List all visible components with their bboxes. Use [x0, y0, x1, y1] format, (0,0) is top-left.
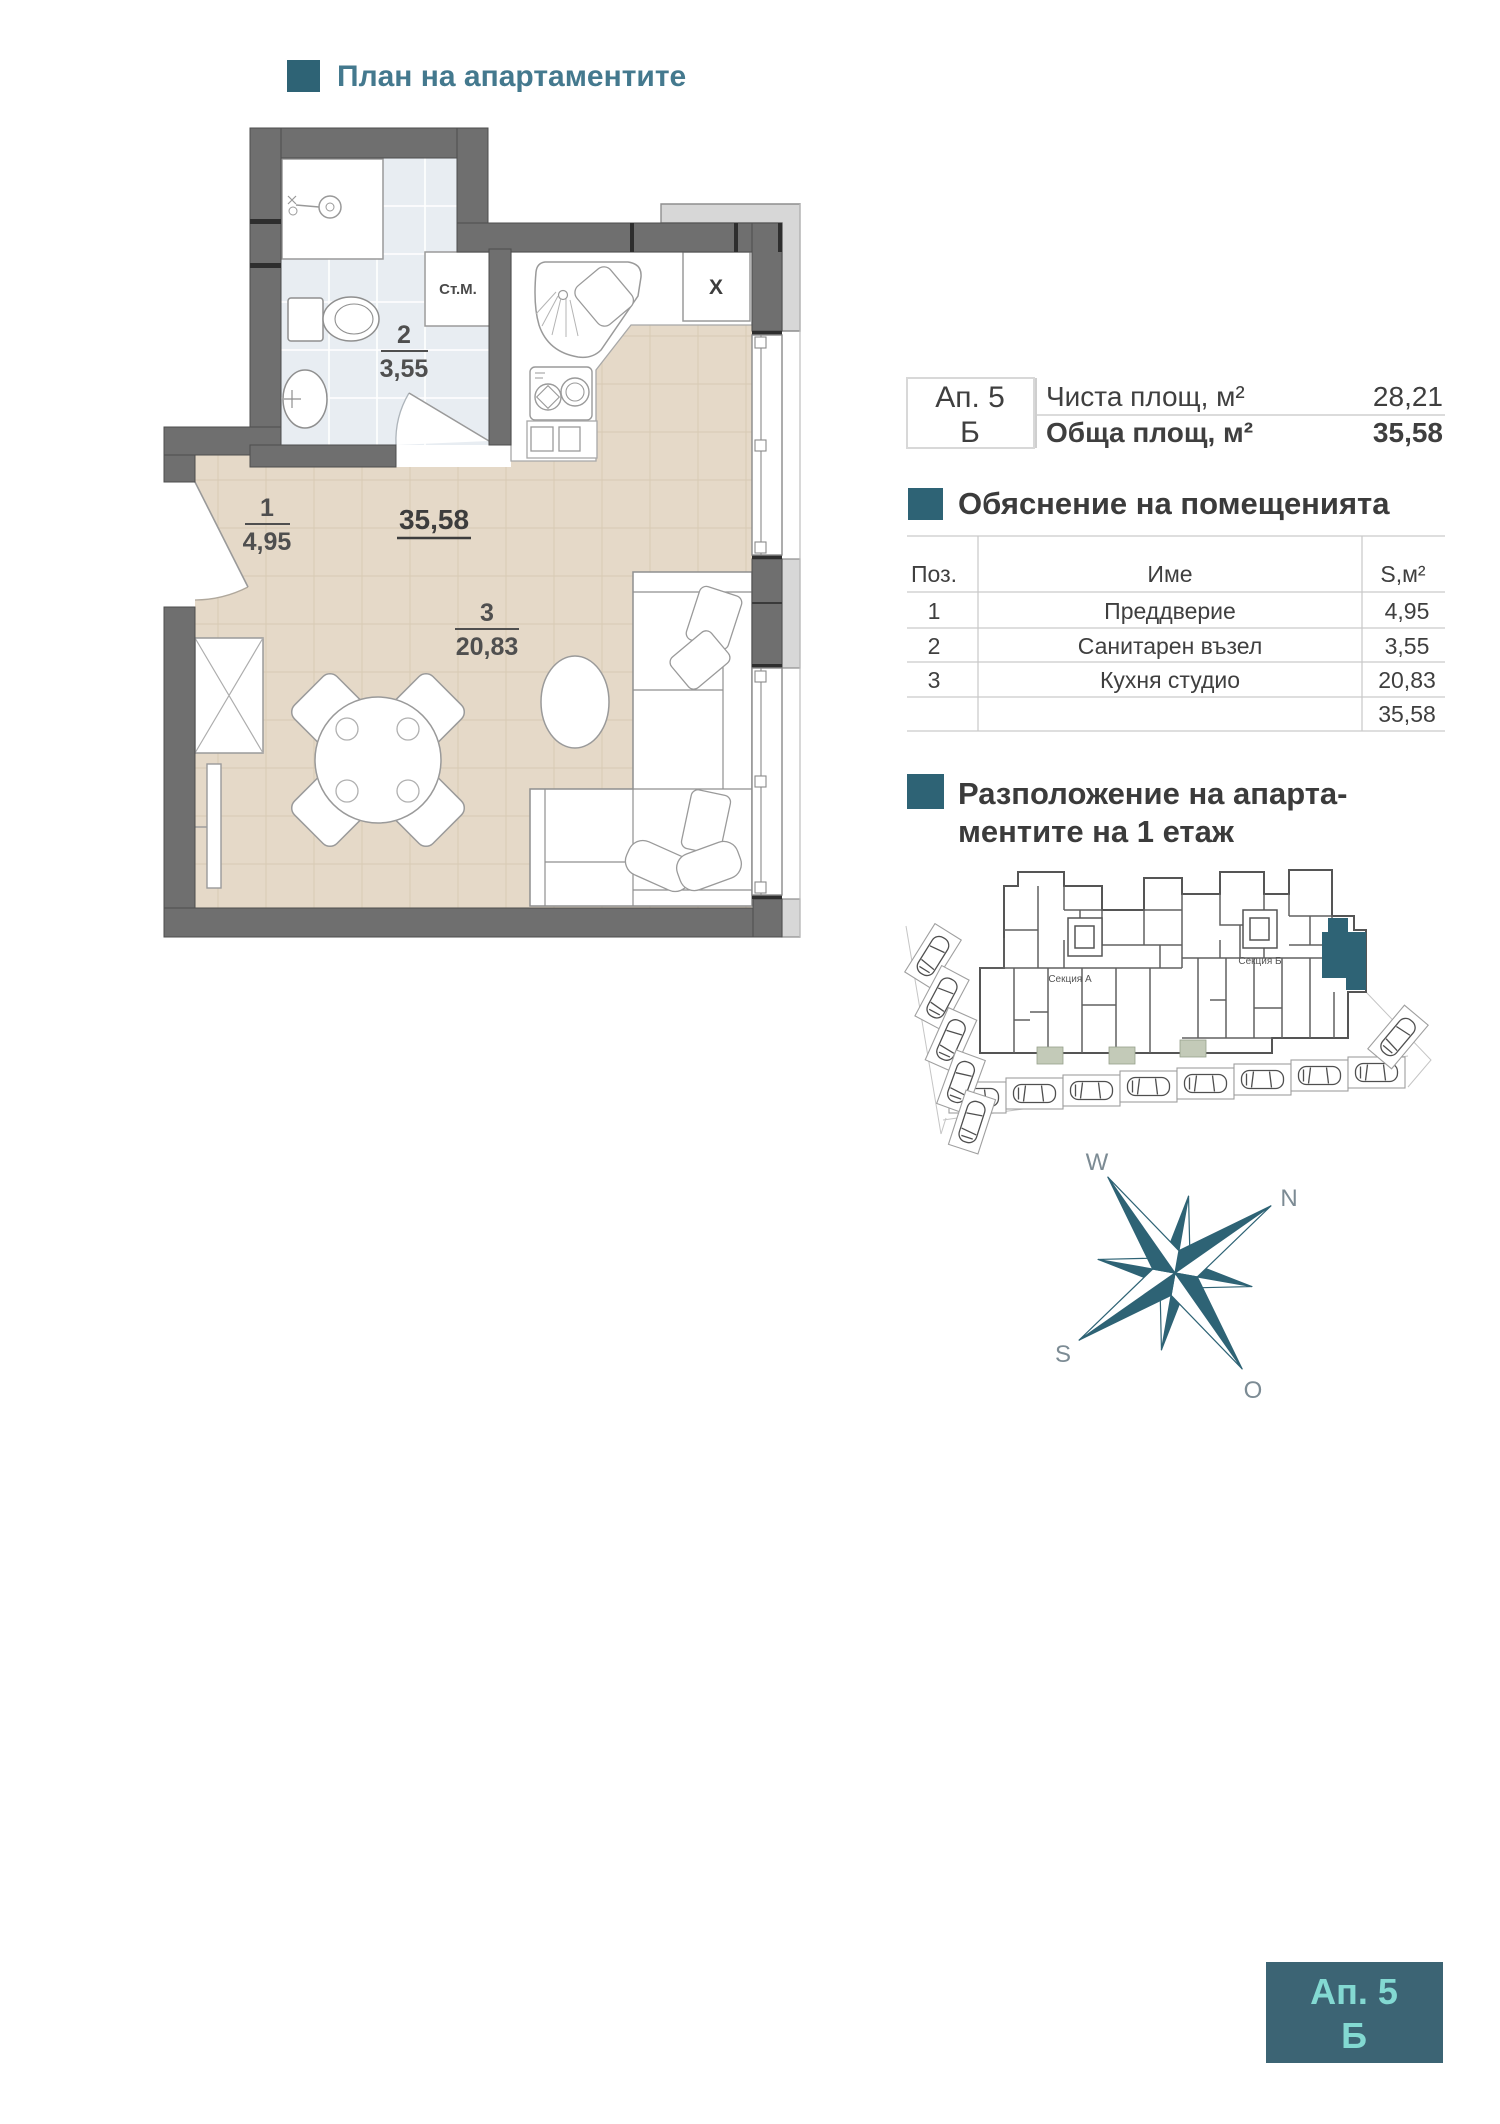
svg-text:Ап. 5: Ап. 5 [1310, 1971, 1398, 2012]
svg-text:35,58: 35,58 [1373, 417, 1443, 448]
svg-text:4,95: 4,95 [1385, 598, 1430, 624]
svg-text:20,83: 20,83 [1378, 667, 1436, 693]
svg-text:3,55: 3,55 [380, 355, 429, 383]
svg-text:N: N [1280, 1185, 1297, 1212]
svg-text:2: 2 [928, 633, 941, 659]
svg-text:35,58: 35,58 [1378, 701, 1436, 727]
svg-text:3: 3 [480, 599, 494, 627]
svg-text:Секция Б: Секция Б [1238, 956, 1282, 967]
svg-text:20,83: 20,83 [456, 633, 519, 661]
svg-text:4,95: 4,95 [243, 528, 292, 556]
svg-text:Обяснение на помещенията: Обяснение на помещенията [958, 486, 1390, 521]
svg-text:Чиста площ, м²: Чиста площ, м² [1046, 381, 1245, 412]
svg-text:Ст.М.: Ст.М. [439, 281, 477, 298]
svg-text:S: S [1055, 1341, 1071, 1368]
svg-text:1: 1 [928, 598, 941, 624]
svg-text:X: X [709, 276, 723, 299]
svg-text:Ап. 5: Ап. 5 [935, 381, 1005, 414]
svg-text:Санитарен възел: Санитарен възел [1078, 633, 1263, 659]
svg-text:O: O [1244, 1377, 1263, 1404]
svg-text:28,21: 28,21 [1373, 381, 1443, 412]
svg-text:Обща площ, м²: Обща площ, м² [1046, 417, 1253, 448]
svg-text:3: 3 [928, 667, 941, 693]
svg-text:Б: Б [960, 416, 980, 449]
svg-text:S,м²: S,м² [1380, 561, 1426, 587]
svg-text:1: 1 [260, 494, 274, 522]
svg-text:ментите на 1 етаж: ментите на 1 етаж [958, 814, 1235, 849]
svg-text:Б: Б [1341, 2015, 1367, 2056]
svg-text:35,58: 35,58 [399, 504, 469, 535]
svg-text:Секция А: Секция А [1048, 974, 1092, 985]
svg-text:План на апартаментите: План на апартаментите [337, 60, 686, 93]
svg-text:Кухня студио: Кухня студио [1100, 667, 1240, 693]
svg-text:Име: Име [1147, 561, 1192, 587]
svg-text:Разположение на апарта-: Разположение на апарта- [958, 776, 1348, 811]
svg-text:Поз.: Поз. [911, 561, 957, 587]
svg-text:2: 2 [397, 321, 411, 349]
svg-text:3,55: 3,55 [1385, 633, 1430, 659]
svg-text:Преддверие: Преддверие [1104, 598, 1236, 624]
svg-text:W: W [1086, 1149, 1109, 1176]
